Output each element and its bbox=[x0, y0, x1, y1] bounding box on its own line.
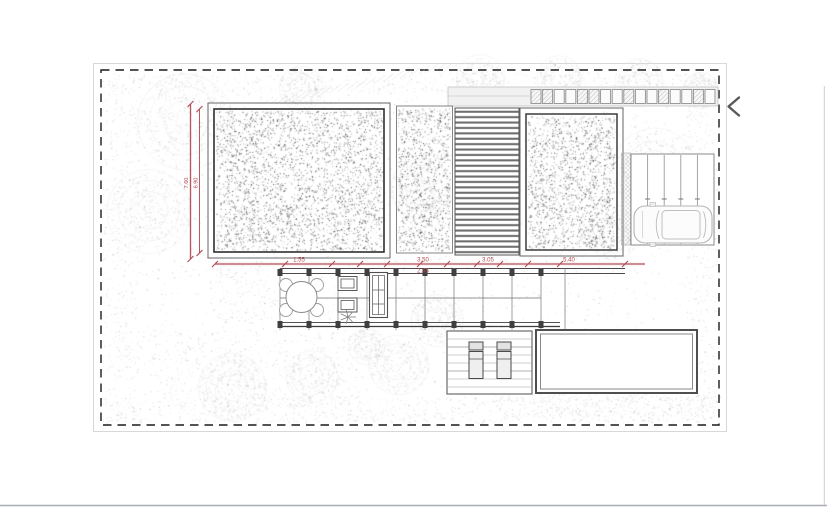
deck-striped bbox=[455, 108, 519, 255]
carport bbox=[622, 153, 715, 247]
wardrobe bbox=[370, 273, 388, 318]
dim-label: 2.45 bbox=[417, 269, 429, 275]
car-mirror-icon bbox=[650, 243, 656, 247]
roof-strip bbox=[397, 106, 453, 253]
pool bbox=[536, 330, 697, 393]
roof-block-right bbox=[520, 108, 623, 256]
dim-label: 1.55 bbox=[293, 258, 305, 264]
building-grid bbox=[280, 268, 565, 330]
dim-label: 6.90 bbox=[194, 178, 200, 189]
lounger-deck bbox=[447, 331, 532, 394]
dim-label: 5.40 bbox=[563, 258, 575, 264]
car-top-view bbox=[634, 203, 712, 247]
chevron-left-icon[interactable] bbox=[729, 98, 740, 116]
dim-label: 3.50 bbox=[417, 258, 429, 264]
plan-viewer: 1.55 3.50 3.05 5.40 2.45 7.60 6.90 bbox=[0, 0, 827, 508]
dim-label: 3.05 bbox=[482, 258, 494, 264]
dimension-lines: 1.55 3.50 3.05 5.40 2.45 7.60 6.90 bbox=[184, 101, 645, 275]
fence-band bbox=[448, 87, 718, 106]
dimension-ticks bbox=[188, 101, 629, 267]
building-band bbox=[278, 268, 626, 330]
sun-lounger bbox=[469, 342, 483, 379]
sun-lounger bbox=[497, 342, 511, 379]
roof-block-left bbox=[208, 103, 390, 258]
site-plan-drawing: 1.55 3.50 3.05 5.40 2.45 7.60 6.90 bbox=[0, 0, 827, 508]
car-mirror-icon bbox=[650, 203, 656, 207]
dim-label: 7.60 bbox=[184, 178, 190, 189]
furniture-squares bbox=[338, 277, 357, 313]
dining-table bbox=[280, 279, 324, 317]
